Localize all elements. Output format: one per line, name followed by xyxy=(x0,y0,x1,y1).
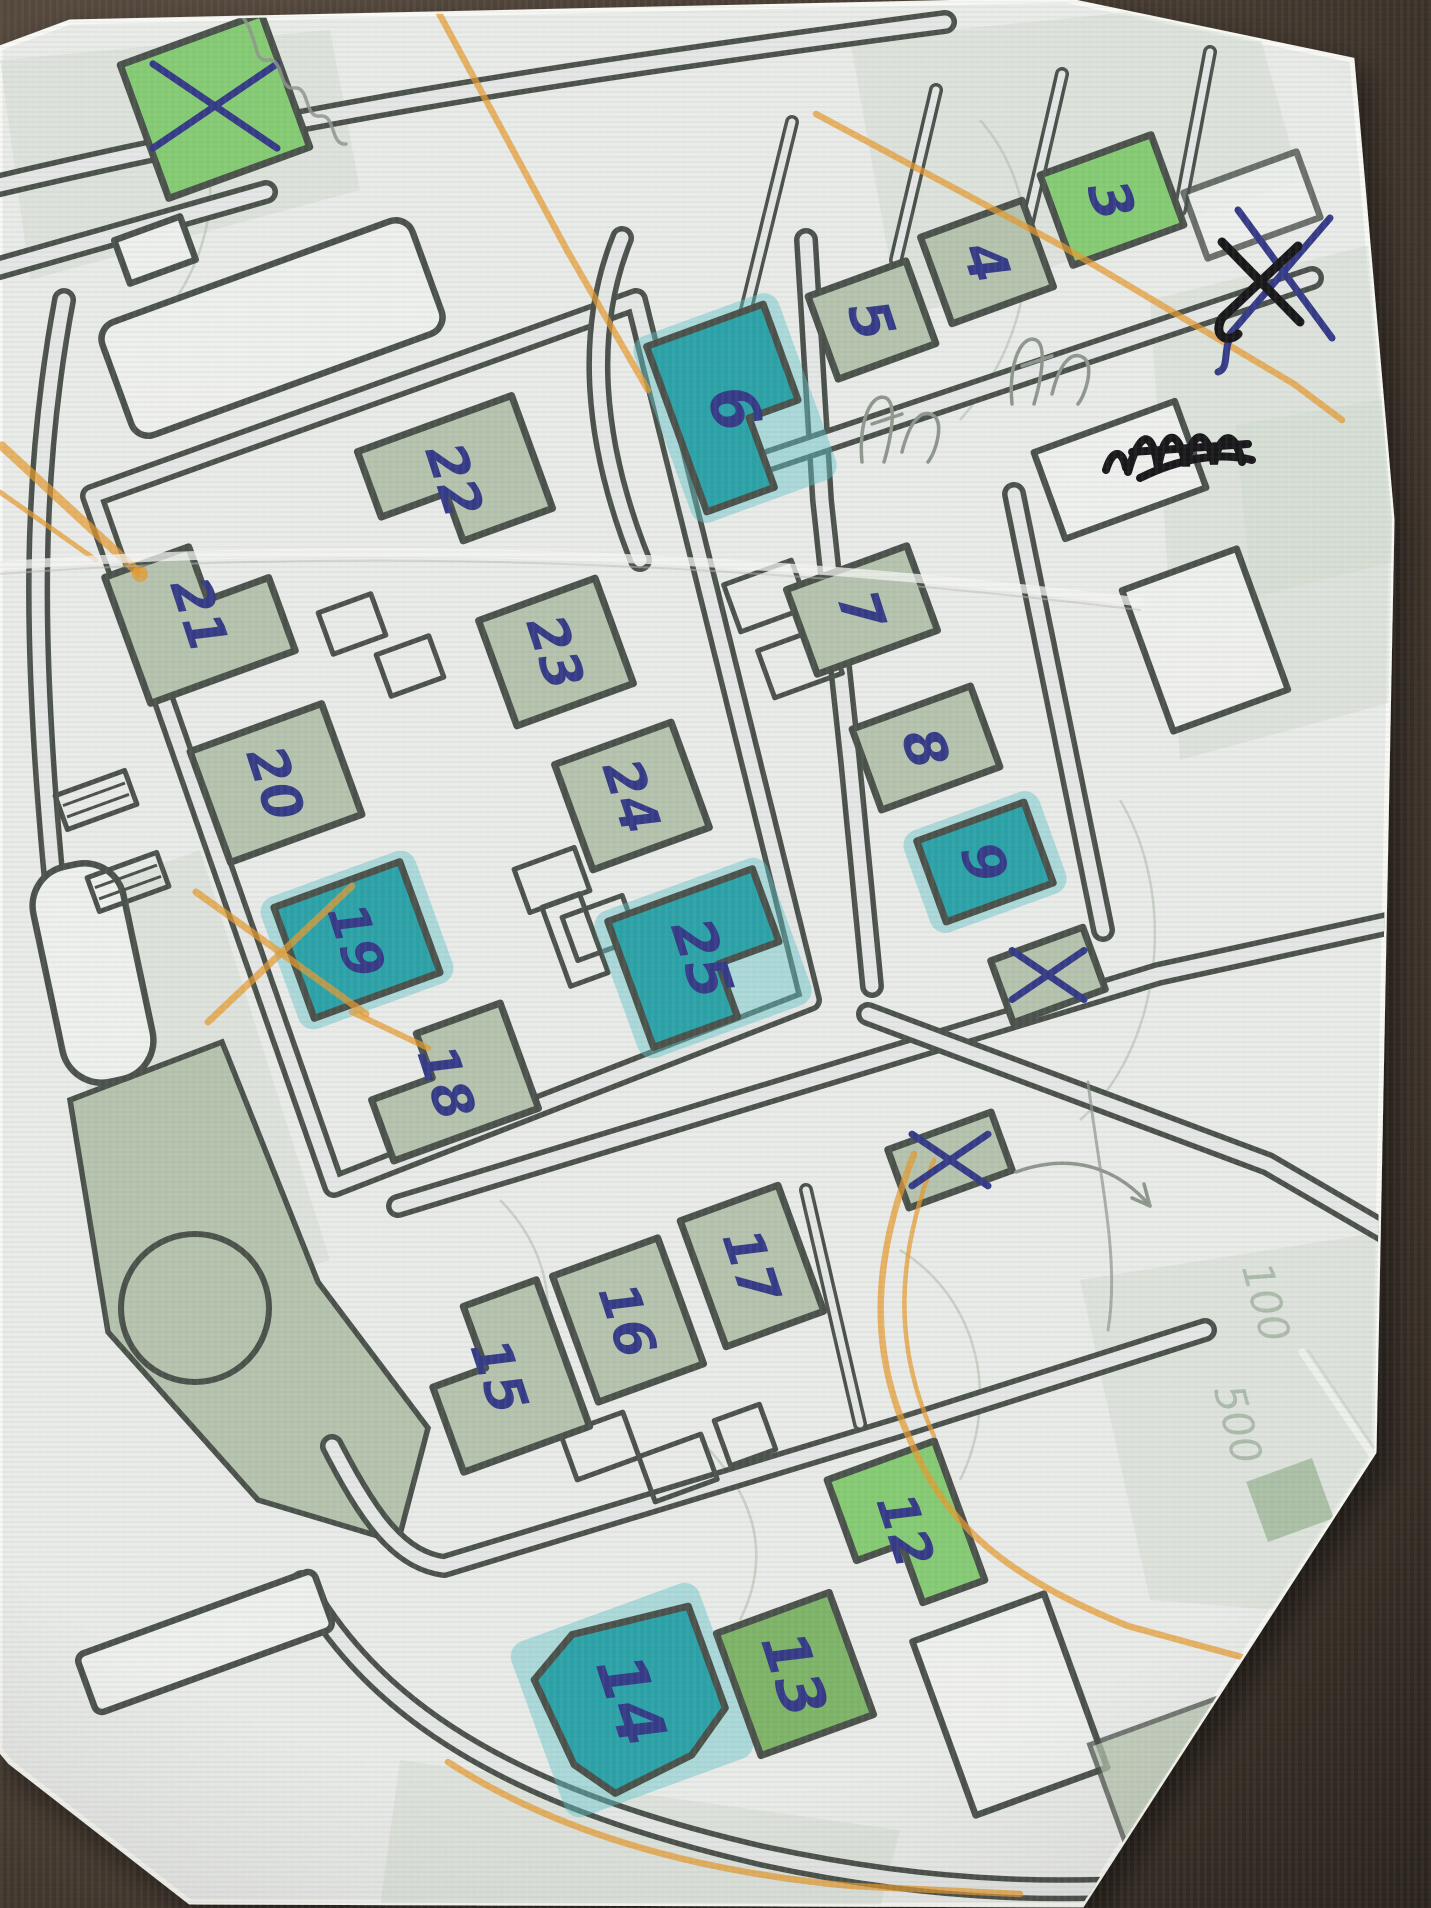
photo-of-paper-map: { "scene": { "kind": "photograph of a pr… xyxy=(0,0,1431,1908)
park-circle xyxy=(121,1234,269,1382)
map-photo: 34567892122232425201918151617141312 xyxy=(0,0,1431,1908)
sage-patch-right xyxy=(1235,398,1394,598)
